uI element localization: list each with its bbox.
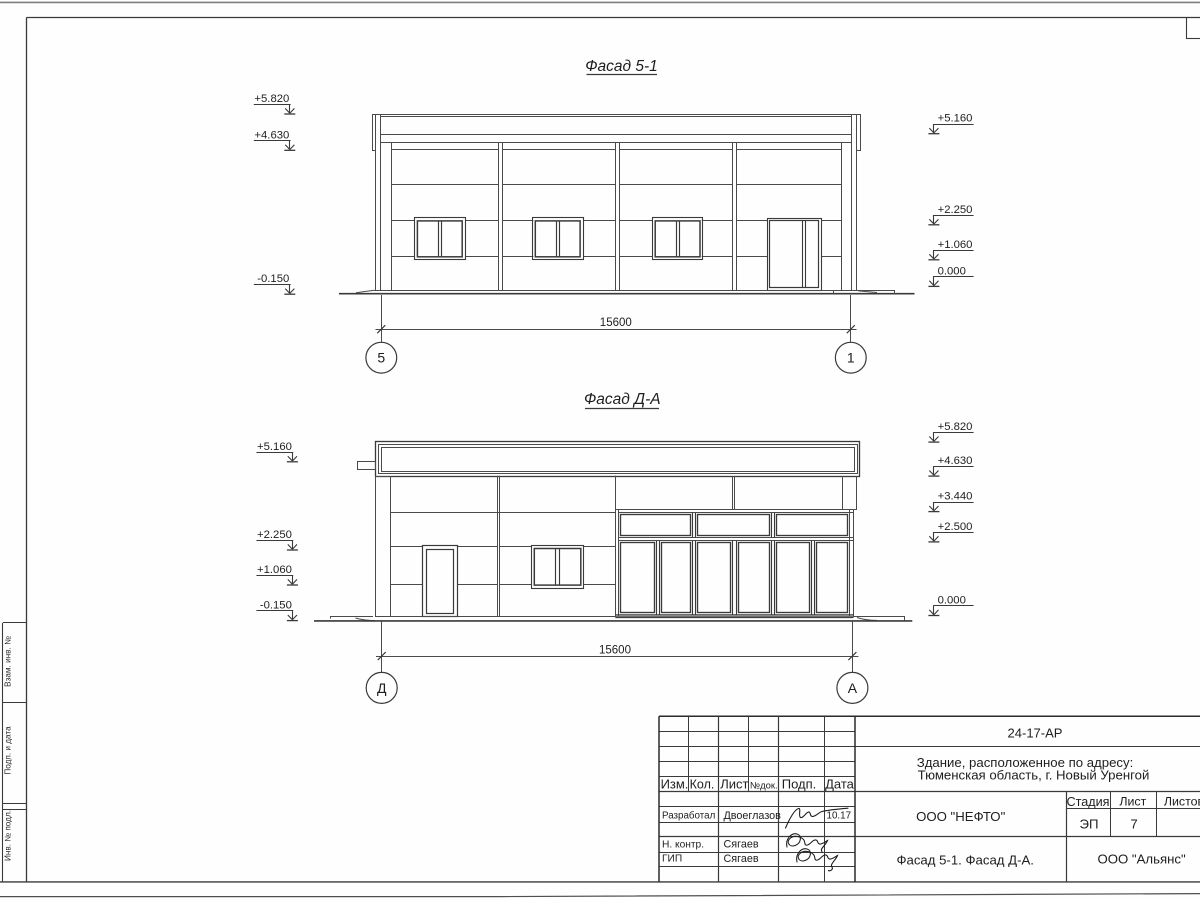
svg-text:Д: Д <box>377 680 387 696</box>
svg-text:Подп.: Подп. <box>782 777 817 792</box>
svg-text:Стадия: Стадия <box>1067 795 1110 809</box>
svg-text:24-17-АР: 24-17-АР <box>1008 726 1063 741</box>
svg-text:+1.060: +1.060 <box>257 564 292 576</box>
svg-text:15600: 15600 <box>600 317 632 329</box>
svg-text:+3.440: +3.440 <box>938 491 973 503</box>
svg-text:Н. контр.: Н. контр. <box>662 839 704 850</box>
svg-text:ГИП: ГИП <box>662 854 682 865</box>
svg-text:№док.: №док. <box>750 781 778 792</box>
svg-text:-0.150: -0.150 <box>260 600 292 612</box>
svg-text:+5.160: +5.160 <box>938 113 973 125</box>
svg-text:+1.060: +1.060 <box>938 239 973 251</box>
svg-text:5: 5 <box>377 350 385 366</box>
svg-text:+2.250: +2.250 <box>938 204 973 216</box>
svg-text:10.17: 10.17 <box>827 810 852 821</box>
svg-text:Двоеглазов: Двоеглазов <box>724 810 782 822</box>
svg-text:Разработал: Разработал <box>662 811 716 822</box>
svg-text:+2.500: +2.500 <box>938 521 973 533</box>
svg-text:+2.250: +2.250 <box>257 529 292 541</box>
svg-text:Сягаев: Сягаев <box>724 853 759 865</box>
svg-text:ООО "НЕФТО": ООО "НЕФТО" <box>916 809 1005 824</box>
svg-text:ООО "Альянс": ООО "Альянс" <box>1098 851 1186 866</box>
svg-text:Подп. и дата: Подп. и дата <box>4 726 13 775</box>
svg-text:Сягаев: Сягаев <box>724 839 759 851</box>
svg-text:Дата: Дата <box>825 777 855 792</box>
svg-text:0.000: 0.000 <box>938 265 966 277</box>
svg-text:Взам. инв. №: Взам. инв. № <box>4 636 13 687</box>
svg-text:+4.630: +4.630 <box>254 129 289 141</box>
svg-text:-0.150: -0.150 <box>257 273 289 285</box>
svg-text:+5.820: +5.820 <box>254 93 289 105</box>
svg-text:А: А <box>848 680 858 696</box>
svg-text:+4.630: +4.630 <box>938 455 973 467</box>
svg-text:0.000: 0.000 <box>938 595 966 607</box>
svg-text:Лист: Лист <box>1119 795 1146 809</box>
svg-text:Инв. № подл.: Инв. № подл. <box>4 810 13 861</box>
svg-text:7: 7 <box>1130 816 1137 831</box>
svg-text:Кол.: Кол. <box>690 778 715 792</box>
svg-text:Тюменская область, г. Новый Ур: Тюменская область, г. Новый Уренгой <box>918 767 1150 782</box>
svg-text:15600: 15600 <box>599 645 631 657</box>
svg-text:Листов: Листов <box>1164 795 1200 809</box>
svg-text:+5.160: +5.160 <box>257 441 292 453</box>
svg-text:Изм.: Изм. <box>661 777 689 792</box>
svg-text:ЭП: ЭП <box>1080 816 1099 831</box>
svg-text:Фасад 5-1: Фасад 5-1 <box>585 58 658 75</box>
svg-text:Фасад 5-1. Фасад Д-А.: Фасад 5-1. Фасад Д-А. <box>896 853 1033 868</box>
svg-text:+5.820: +5.820 <box>938 421 973 433</box>
svg-text:1: 1 <box>847 350 855 366</box>
svg-text:Фасад Д-А: Фасад Д-А <box>584 391 661 408</box>
svg-text:Лист: Лист <box>720 777 748 792</box>
